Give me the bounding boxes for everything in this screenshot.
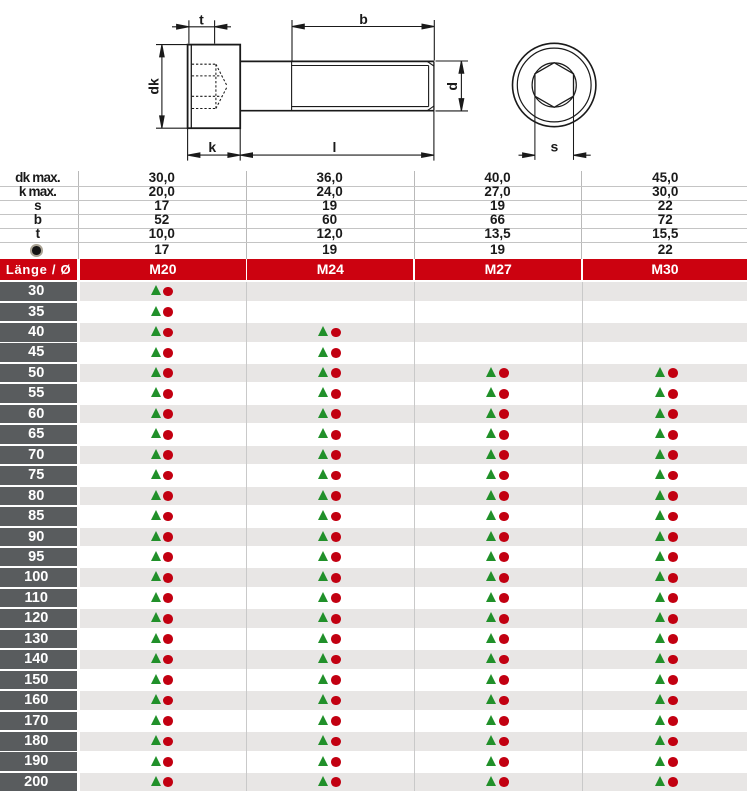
svg-text:b: b xyxy=(359,11,368,27)
svg-text:l: l xyxy=(333,139,337,155)
svg-text:dk: dk xyxy=(145,78,161,95)
svg-text:s: s xyxy=(551,139,559,155)
svg-text:t: t xyxy=(199,11,204,27)
svg-text:d: d xyxy=(444,82,460,91)
svg-text:k: k xyxy=(208,139,216,155)
